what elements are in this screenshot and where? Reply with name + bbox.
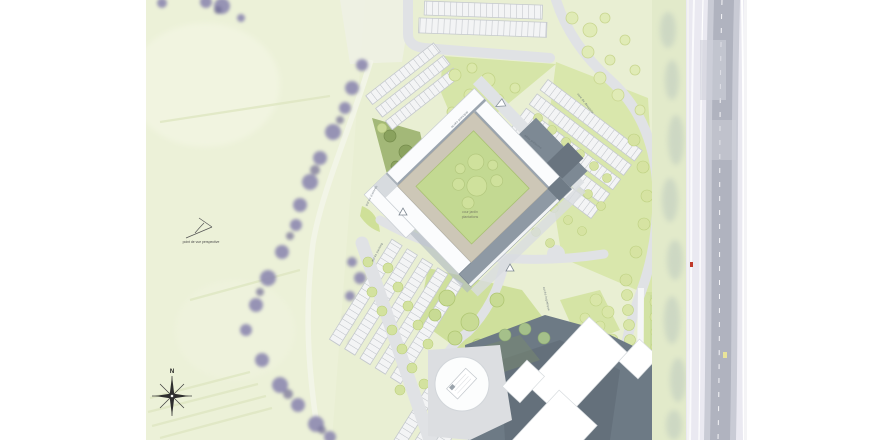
compass-north-label: N	[170, 369, 174, 375]
svg-text:plantations: plantations	[462, 215, 479, 219]
site-plan-map: cour jardin plantations accès principal …	[0, 0, 890, 440]
courtyard-label: cour jardin plantations	[462, 210, 479, 219]
vehicle-yellow	[723, 352, 727, 358]
site-plan-page: cour jardin plantations accès principal …	[0, 0, 890, 440]
perspective-label: point de vue perspective	[183, 240, 220, 244]
svg-text:cour jardin: cour jardin	[462, 210, 478, 214]
highway-corridor	[652, 0, 748, 440]
vehicle-red	[690, 262, 693, 267]
